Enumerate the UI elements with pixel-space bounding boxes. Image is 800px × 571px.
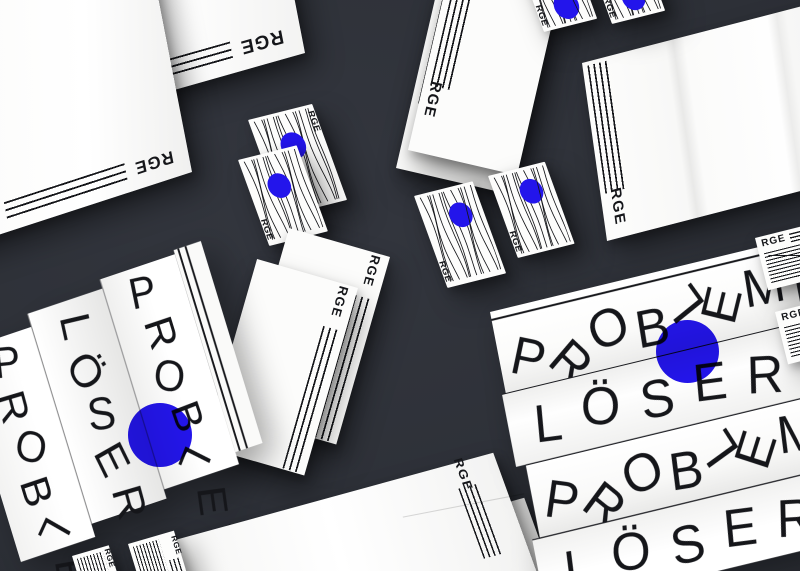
poster-letter: R [104, 480, 153, 524]
wave-line [534, 165, 568, 245]
poster-letter: R [137, 311, 184, 354]
wave-pattern-icon [492, 165, 571, 254]
poster-letter: R [747, 348, 785, 403]
wave-line [540, 165, 571, 244]
poster-letter: L [52, 309, 98, 344]
brand-logo-text: RGE [452, 457, 476, 493]
poster-problem-loeser-right: PROBLEM LÖSER PROBLEM LÖSER [490, 240, 800, 571]
poster-letter: Ö [610, 524, 652, 571]
trifold-letterhead-top-right: RGE [582, 0, 800, 241]
stationery-mockup-scene: RGE RGE RGE RGE RGE RGE RGE RGE RGE [0, 0, 800, 571]
line-card-bottom-1: RGE [72, 545, 127, 571]
brand-mark: RGE [446, 464, 508, 560]
poster-problem-loeser-left: PROBLEM LÖSER PROBLEM [0, 245, 266, 540]
poster-letter: P [0, 339, 23, 385]
brand-logo-text: RGE [329, 285, 351, 320]
blue-dot-accent [656, 320, 719, 383]
poster-letter: O [152, 352, 187, 400]
brand-logo-text: RGE [608, 186, 628, 227]
poster-letter: B [13, 471, 60, 512]
poster-letter: P [506, 329, 550, 388]
wave-pattern-icon [418, 185, 502, 284]
poster-letter: S [666, 515, 709, 571]
wave-line [452, 185, 489, 273]
brand-logo-text: RGE [421, 80, 444, 119]
poster-letter: O [12, 422, 51, 472]
business-card-center: RGE [414, 181, 506, 288]
poster-letter: S [85, 390, 119, 439]
brand-logo-text: RGE [361, 254, 383, 289]
brand-lines-icon [587, 61, 624, 194]
wave-line [462, 185, 498, 271]
brand-logo-text: RGE [761, 234, 787, 250]
poster-letter: L [32, 511, 78, 553]
brand-lines-icon [4, 163, 128, 219]
poster-letter: Ö [580, 379, 621, 434]
business-card-center-right: RGE [488, 162, 575, 258]
brand-logo-text: RGE [238, 26, 285, 57]
brand-mark: RGE [4, 148, 175, 220]
poster-letter: R [776, 491, 800, 546]
blue-dot-accent [128, 403, 192, 467]
poster-letter: E [721, 499, 760, 556]
brand-lines-icon [789, 227, 800, 242]
brand-logo-text: RGE [132, 148, 174, 178]
poster-letter: E [190, 484, 234, 518]
poster-letter: L [561, 540, 596, 571]
brand-lines-icon [459, 484, 503, 559]
brand-logo-text: RGE [781, 308, 800, 324]
swoosh-line-icon [768, 255, 800, 256]
letterhead-top-left-front: RGE [0, 0, 192, 288]
poster-letter: L [532, 395, 565, 452]
poster-letter: P [125, 268, 160, 317]
